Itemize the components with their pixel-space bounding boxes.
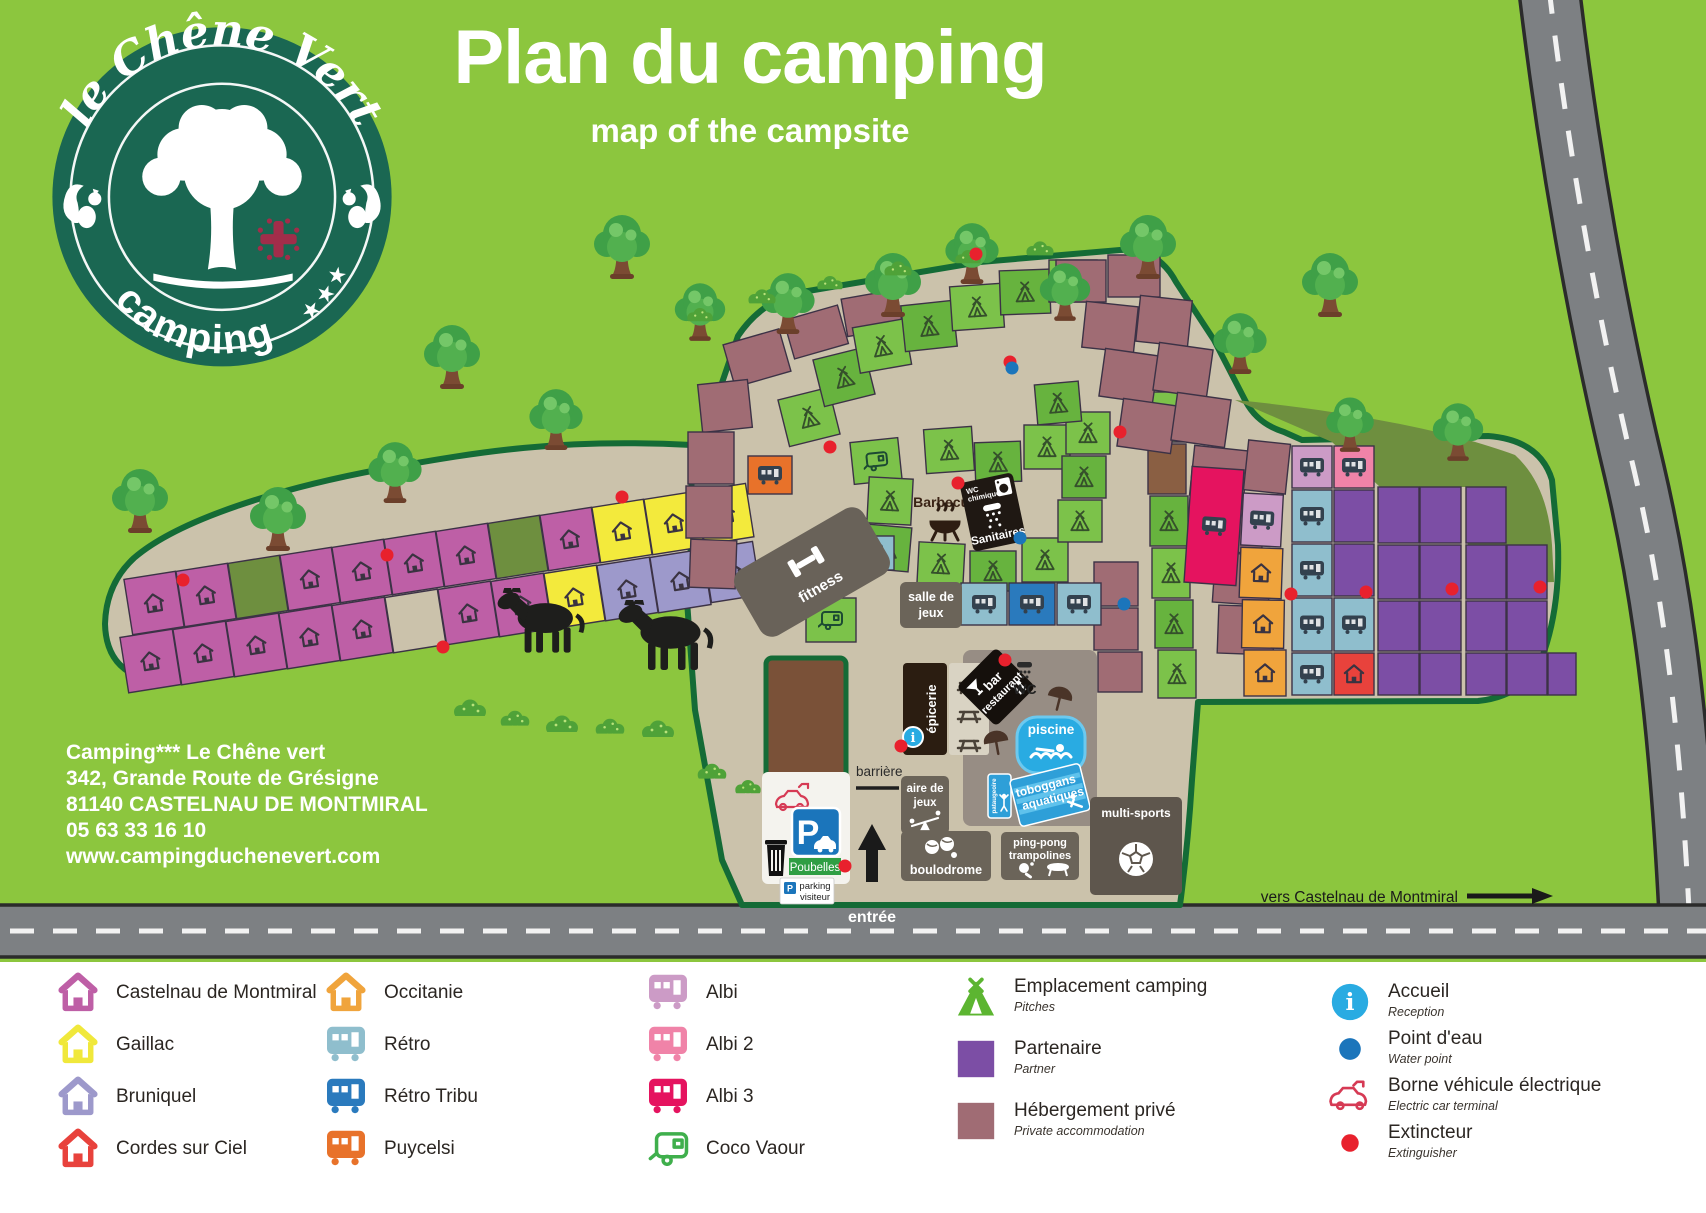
borne-vehicule-icon (1322, 1080, 1378, 1112)
extinguisher-dot (952, 477, 965, 490)
pitch-partner (1466, 487, 1506, 543)
legend-label: AccueilReception (1388, 981, 1449, 1023)
svg-text:multi-sports: multi-sports (1101, 806, 1171, 820)
legend-item-extincteur: ExtincteurExtinguisher (1322, 1119, 1601, 1166)
legend-item-partenaire: PartenairePartner (948, 1028, 1207, 1090)
water-point-dot (1006, 362, 1019, 375)
pitch-partner (1378, 487, 1419, 543)
svg-text:i: i (1346, 988, 1355, 1016)
pitch-castelnau (279, 605, 340, 669)
pitch-olive (488, 515, 548, 578)
extinguisher-dot (970, 248, 983, 261)
pitch-green2 (1034, 381, 1081, 425)
legend-item-borne-vehicule: Borne véhicule électriqueElectric car te… (1322, 1072, 1601, 1119)
pitch-private (698, 380, 753, 433)
legend-label: Albi 2 (706, 1034, 754, 1055)
campsite-map-poster: { "title": {"main": "Plan du camping", "… (0, 0, 1706, 1213)
pitch-retro (961, 583, 1007, 625)
facility-aire-de-jeux: aire de jeux (901, 776, 949, 834)
pitch-albi2 (1334, 446, 1374, 488)
accueil-icon: i (1322, 982, 1378, 1022)
facility-multisports: multi-sports (1090, 797, 1182, 895)
extinguisher-dot (895, 740, 908, 753)
pitch-partner (1466, 601, 1506, 651)
pitch-castelnau (438, 581, 499, 645)
svg-text:WC: WC (1013, 681, 1036, 697)
extinguisher-dot (824, 441, 837, 454)
pitch-partner (1507, 653, 1547, 695)
facility-salle-de-jeux: salle de jeux (900, 582, 962, 628)
legend-label: Rétro Tribu (384, 1086, 478, 1107)
svg-text:jeux: jeux (912, 797, 937, 809)
svg-text:i: i (911, 731, 916, 746)
albi-icon (640, 973, 696, 1011)
address-line: 81140 CASTELNAU DE MONTMIRAL (66, 792, 428, 818)
pitch-castelnau (280, 547, 340, 610)
legend-item-retro-tribu: Rétro Tribu (318, 1070, 478, 1122)
legend-item-occitanie: Occitanie (318, 966, 478, 1018)
pitch-retro (1292, 653, 1332, 695)
svg-text:jeux: jeux (917, 606, 943, 620)
svg-text:trampolines: trampolines (1009, 850, 1071, 862)
pitch-partner (1466, 653, 1506, 695)
pitch-green2 (1062, 456, 1106, 498)
legend-sublabel: Electric car terminal (1388, 1096, 1601, 1117)
extinguisher-dot (381, 549, 394, 562)
pitch-retro_tribu (1009, 583, 1055, 625)
extinguisher-dot (999, 654, 1012, 667)
legend-sublabel: Water point (1388, 1049, 1482, 1070)
extinguisher-dot (1285, 588, 1298, 601)
pitch-private (1117, 398, 1177, 453)
gaillac-icon (50, 1024, 106, 1064)
legend-sublabel: Extinguisher (1388, 1143, 1472, 1164)
extinguisher-dot (177, 574, 190, 587)
facility-boulodrome: boulodrome (901, 831, 991, 881)
pitch-castelnau (332, 597, 393, 661)
legend-label: Point d'eauWater point (1388, 1028, 1482, 1070)
pitch-occitanie (1242, 600, 1285, 649)
legend-item-albi-3: Albi 3 (640, 1070, 805, 1122)
legend-item-accueil: iAccueilReception (1322, 978, 1601, 1025)
hebergement-prive-icon (948, 1101, 1004, 1141)
entrance-label: entrée (848, 909, 896, 926)
legend-sublabel: Partner (1014, 1059, 1102, 1080)
cordes-icon (50, 1128, 106, 1168)
pitch-partner (1420, 487, 1461, 543)
legend-column: iAccueilReceptionPoint d'eauWater pointB… (1322, 978, 1601, 1166)
legend-item-emplacement-camping: Emplacement campingPitches (948, 966, 1207, 1028)
pitch-green2 (1150, 496, 1188, 546)
paddock-field (766, 658, 846, 780)
extincteur-icon (1322, 1127, 1378, 1159)
pitch-private (1098, 652, 1142, 692)
svg-text:visiteur: visiteur (800, 892, 830, 903)
extinguisher-dot (839, 860, 852, 873)
svg-text:barrière: barrière (856, 764, 903, 779)
ball-icon (1119, 842, 1153, 876)
pitch-retro (1292, 544, 1332, 596)
pitch-green (917, 542, 965, 586)
page-title: Plan du camping (420, 14, 1080, 101)
svg-text:parking: parking (799, 881, 830, 892)
pitch-green (1158, 650, 1196, 698)
pitch-castelnau (384, 531, 444, 594)
legend-item-coco-vaour: Coco Vaour (640, 1122, 805, 1174)
pitch-partner (1466, 545, 1506, 599)
legend-item-puycelsi: Puycelsi (318, 1122, 478, 1174)
pitch-albi (1241, 493, 1284, 547)
pitch-olive (228, 555, 288, 618)
pitch-partner (1378, 601, 1419, 651)
legend-label: Puycelsi (384, 1138, 455, 1159)
pitch-albi3 (1184, 466, 1244, 585)
extinguisher-dot (616, 491, 629, 504)
pitch-albi (1292, 446, 1332, 488)
pitch-castelnau (226, 613, 287, 677)
legend-label: Castelnau de Montmiral (116, 982, 317, 1003)
legend-column: OccitanieRétroRétro TribuPuycelsi (318, 966, 478, 1174)
pitch-partner (1378, 653, 1419, 695)
pitch-beige (385, 589, 446, 653)
extinguisher-dot (1360, 586, 1373, 599)
address-line: 342, Grande Route de Grésigne (66, 766, 428, 792)
svg-text:P: P (787, 884, 793, 894)
pitch-castelnau (176, 563, 236, 626)
pitch-castelnau (124, 571, 184, 634)
pitch-gaillac (592, 499, 652, 562)
svg-text:boulodrome: boulodrome (910, 863, 982, 877)
legend-label: Occitanie (384, 982, 463, 1003)
pitch-retro (1057, 583, 1101, 625)
legend-sublabel: Reception (1388, 1002, 1449, 1023)
pitch-retro (1334, 598, 1374, 651)
legend-item-gaillac: Gaillac (50, 1018, 317, 1070)
legend-sublabel: Pitches (1014, 997, 1207, 1018)
pitch-castelnau (173, 621, 234, 685)
address-line: www.campingduchenevert.com (66, 844, 428, 870)
pitch-castelnau (540, 507, 600, 570)
pitch-occitanie (1244, 650, 1286, 696)
water-point-dot (1014, 532, 1027, 545)
legend-column: Emplacement campingPitchesPartenairePart… (948, 966, 1207, 1152)
pitch-castelnau (332, 539, 392, 602)
partenaire-icon (948, 1039, 1004, 1079)
legend-label: Albi (706, 982, 738, 1003)
address-block: Camping*** Le Chêne vert 342, Grande Rou… (66, 740, 428, 870)
extinguisher-dot (1114, 426, 1127, 439)
pitch-private (689, 539, 737, 589)
legend-label: Coco Vaour (706, 1138, 805, 1159)
pitch-puycelsi (748, 456, 792, 494)
pitch-castelnau (120, 629, 181, 693)
retro-tribu-icon (318, 1077, 374, 1115)
legend-label: Bruniquel (116, 1086, 196, 1107)
castelnau-icon (50, 972, 106, 1012)
water-point-dot (1118, 598, 1131, 611)
extinguisher-dot (1534, 581, 1547, 594)
svg-text:aire de: aire de (906, 783, 943, 795)
address-line: 05 63 33 16 10 (66, 818, 428, 844)
occitanie-icon (318, 972, 374, 1012)
puycelsi-icon (318, 1129, 374, 1167)
svg-text:vers Castelnau de Montmiral: vers Castelnau de Montmiral (1261, 889, 1458, 906)
pitch-private (688, 432, 734, 484)
legend-label: Gaillac (116, 1034, 174, 1055)
pitch-green (867, 477, 913, 525)
legend-item-castelnau: Castelnau de Montmiral (50, 966, 317, 1018)
legend-item-retro: Rétro (318, 1018, 478, 1070)
legend-item-albi: Albi (640, 966, 805, 1018)
parking-visiteur-label: P parking visiteur (780, 878, 834, 904)
pitch-partner (1334, 490, 1374, 542)
albi-3-icon (640, 1077, 696, 1115)
legend-column: Castelnau de MontmiralGaillacBruniquelCo… (50, 966, 317, 1174)
pitch-retro (1292, 490, 1332, 542)
address-line: Camping*** Le Chêne vert (66, 740, 428, 766)
legend-item-albi-2: Albi 2 (640, 1018, 805, 1070)
pitch-occitanie (1239, 547, 1283, 598)
pitch-retro (1292, 598, 1332, 651)
legend-item-cordes: Cordes sur Ciel (50, 1122, 317, 1174)
coco-vaour-icon (640, 1130, 696, 1166)
svg-text:pataugeoire: pataugeoire (991, 778, 998, 814)
pitch-castelnau (436, 523, 496, 586)
pitch-private (1099, 348, 1159, 403)
legend-label: Cordes sur Ciel (116, 1138, 247, 1159)
pitch-green (924, 426, 975, 473)
extinguisher-dot (1446, 583, 1459, 596)
svg-text:épicerie: épicerie (924, 684, 939, 733)
legend-item-point-eau: Point d'eauWater point (1322, 1025, 1601, 1072)
pitch-private (1153, 342, 1213, 397)
pitch-green (1022, 538, 1068, 582)
svg-text:salle de: salle de (908, 590, 954, 604)
legend-label: ExtincteurExtinguisher (1388, 1122, 1472, 1164)
legend-item-bruniquel: Bruniquel (50, 1070, 317, 1122)
retro-icon (318, 1025, 374, 1063)
legend-label: Hébergement privéPrivate accommodation (1014, 1100, 1176, 1142)
emplacement-camping-icon (948, 976, 1004, 1018)
facility-pingpong-trampolines: ping-pong trampolines (1001, 832, 1079, 880)
pitch-private (1082, 301, 1139, 352)
bruniquel-icon (50, 1076, 106, 1116)
legend-item-hebergement-prive: Hébergement privéPrivate accommodation (948, 1090, 1207, 1152)
legend: Castelnau de MontmiralGaillacBruniquelCo… (0, 962, 1706, 1213)
legend-label: Borne véhicule électriqueElectric car te… (1388, 1075, 1601, 1117)
page-subtitle: map of the campsite (420, 112, 1080, 150)
pitch-green2 (1155, 600, 1193, 648)
point-eau-icon (1322, 1032, 1378, 1066)
legend-label: Emplacement campingPitches (1014, 976, 1207, 1018)
pitch-partner (1420, 653, 1461, 695)
extinguisher-dot (437, 641, 450, 654)
poubelles-label: Poubelles (789, 858, 841, 875)
pitch-green (1058, 500, 1102, 542)
legend-label: Albi 3 (706, 1086, 754, 1107)
svg-text:ping-pong: ping-pong (1013, 837, 1067, 849)
pitch-partner (1378, 545, 1419, 599)
pitch-cordes (1334, 653, 1374, 695)
pitch-green (950, 283, 1005, 331)
logo-le-chene-vert: le Chêne Vert camping ★★★ (10, 5, 434, 429)
pitch-private (1136, 295, 1193, 346)
legend-label: PartenairePartner (1014, 1038, 1102, 1080)
pitch-private (686, 486, 732, 538)
legend-sublabel: Private accommodation (1014, 1121, 1176, 1142)
pitch-private (1244, 440, 1291, 494)
legend-label: Rétro (384, 1034, 430, 1055)
svg-text:Poubelles: Poubelles (790, 862, 841, 874)
svg-text:piscine: piscine (1028, 722, 1075, 737)
legend-column: AlbiAlbi 2Albi 3Coco Vaour (640, 966, 805, 1174)
pitch-partner (1507, 601, 1547, 651)
pitch-green2 (901, 300, 958, 351)
pitch-partner (1420, 601, 1461, 651)
parking-sign: P (792, 808, 840, 856)
albi-2-icon (640, 1025, 696, 1063)
pitch-private (1171, 392, 1231, 447)
pitch-partner (1548, 653, 1576, 695)
facility-pataugeoire: pataugeoire (988, 774, 1011, 818)
